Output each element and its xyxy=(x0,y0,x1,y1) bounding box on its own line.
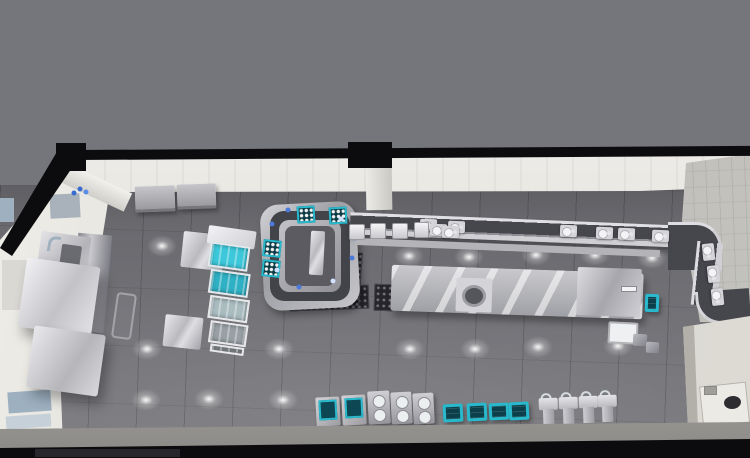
teal-bin xyxy=(509,401,530,420)
conveyor-plate-tray xyxy=(442,226,459,239)
conveyor-plate-tray xyxy=(652,230,669,243)
hand-wash-sink xyxy=(558,395,578,426)
floor-light-glow xyxy=(194,388,224,410)
counter-machine xyxy=(392,223,408,239)
counter-machine xyxy=(349,224,365,240)
island-right-section xyxy=(576,267,642,317)
floor-light-glow xyxy=(131,389,161,411)
frame-pillar-center xyxy=(348,142,392,168)
stool-seat xyxy=(646,342,660,354)
conveyor-plate-tray xyxy=(596,227,613,240)
teal-bin xyxy=(489,402,510,420)
dishwash-machine-upper xyxy=(17,257,100,337)
wall-cabinet xyxy=(177,183,217,209)
wall-cabinet xyxy=(135,185,176,212)
dishwash-machine-lower xyxy=(26,325,106,396)
teal-cup-rack xyxy=(329,207,348,225)
floor-light-glow xyxy=(523,336,553,358)
conveyor-loop-machine xyxy=(309,231,325,276)
hand-wash-sink xyxy=(538,396,558,427)
conveyor-plate-tray xyxy=(560,225,577,238)
conveyor-plate-tray xyxy=(702,243,716,261)
counter-machine xyxy=(414,222,429,238)
floor-light-glow xyxy=(268,389,298,411)
small-dish-item xyxy=(275,268,280,273)
island-sink-basin xyxy=(462,285,486,307)
small-dish-item xyxy=(331,279,336,284)
small-dish-item xyxy=(270,222,275,227)
small-dish-item xyxy=(72,191,77,196)
conveyor-plate-tray xyxy=(707,265,721,283)
small-dish-item xyxy=(297,285,302,290)
teal-bin xyxy=(443,403,464,422)
small-dish-item xyxy=(286,208,291,213)
sink-basin xyxy=(598,395,617,408)
double-burner-stove xyxy=(390,391,413,424)
counter-machine xyxy=(370,223,386,239)
wall-panel xyxy=(49,193,80,219)
rack-shelf-cell xyxy=(207,241,250,271)
sink-basin xyxy=(579,396,598,409)
hand-wash-sink xyxy=(578,394,598,425)
floor-light-glow xyxy=(132,338,162,360)
floor-light-glow xyxy=(395,338,425,360)
teal-top-cooker xyxy=(315,396,340,426)
frame-bottom-inner-strip xyxy=(35,449,180,457)
sink-basin xyxy=(559,397,578,410)
teal-bin xyxy=(645,294,660,312)
teal-cup-rack xyxy=(262,239,282,258)
teal-top-cooker xyxy=(341,394,367,425)
double-burner-stove xyxy=(412,392,435,424)
rack-shelf-cell xyxy=(208,269,251,298)
floor-light-glow xyxy=(264,338,294,360)
teal-bin xyxy=(467,402,488,421)
sink-basin xyxy=(539,398,558,411)
rack-shelf-cell xyxy=(207,295,250,323)
floor-light-glow xyxy=(394,245,424,267)
wall-panel xyxy=(0,198,14,222)
conveyor-plate-tray xyxy=(711,288,725,306)
small-dish-item xyxy=(339,217,344,222)
teal-cup-rack xyxy=(297,206,316,224)
conveyor-plate-tray xyxy=(618,228,635,241)
kitchen-render xyxy=(0,0,750,458)
small-dish-item xyxy=(78,187,83,192)
small-dish-item xyxy=(350,256,355,261)
floor-light-glow xyxy=(147,235,177,257)
floor-light-glow xyxy=(460,338,490,360)
small-dish-item xyxy=(84,190,89,195)
double-burner-stove xyxy=(367,390,391,424)
door-vent xyxy=(704,386,717,395)
support-column xyxy=(366,164,393,210)
wall-panel xyxy=(7,390,51,414)
island-tray-slot xyxy=(621,286,637,292)
hand-wash-sink xyxy=(597,393,617,424)
